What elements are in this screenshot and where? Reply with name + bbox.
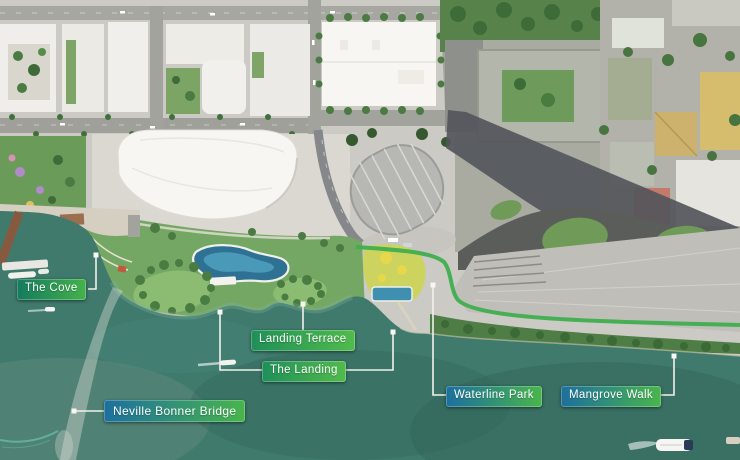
map-label-the-landing[interactable]: The Landing — [262, 361, 346, 382]
map-label-the-cove[interactable]: The Cove — [17, 279, 86, 300]
masterplan-map: The Cove Landing Terrace The Landing Nev… — [0, 0, 740, 460]
map-label-mangrove-walk[interactable]: Mangrove Walk — [561, 386, 661, 407]
map-label-landing-terrace[interactable]: Landing Terrace — [251, 330, 355, 351]
map-label-neville-bonner-bridge[interactable]: Neville Bonner Bridge — [104, 400, 245, 422]
map-labels: The Cove Landing Terrace The Landing Nev… — [0, 0, 740, 460]
map-label-waterline-park[interactable]: Waterline Park — [446, 386, 542, 407]
